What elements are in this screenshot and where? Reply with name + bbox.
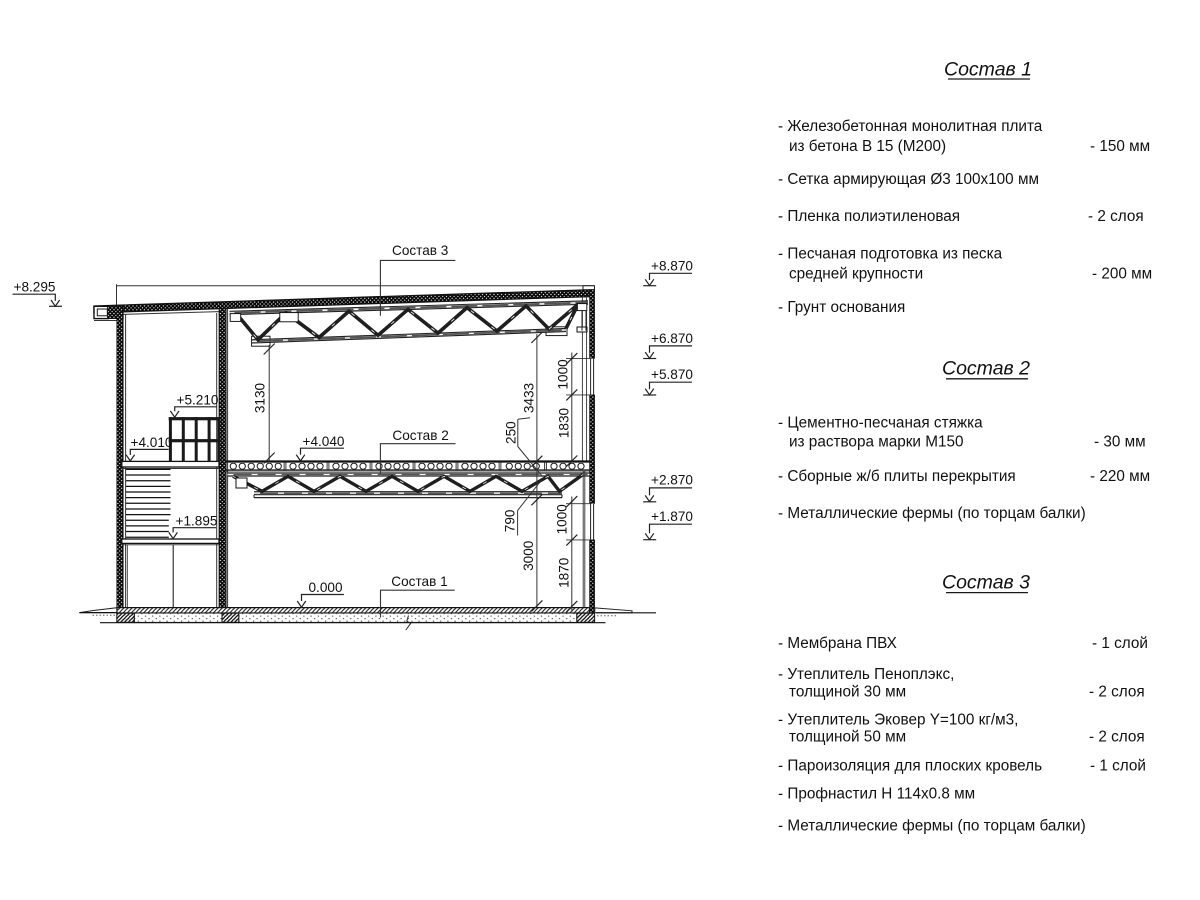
svg-text:- Мембрана ПВХ: - Мембрана ПВХ [778,635,897,652]
svg-text:1000: 1000 [556,359,571,390]
svg-text:+8.870: +8.870 [651,258,693,273]
svg-text:- Металлические фермы (по торц: - Металлические фермы (по торцам балки) [778,505,1086,522]
svg-text:Состав 1: Состав 1 [391,574,447,589]
svg-text:+1.895: +1.895 [176,514,218,529]
svg-text:- Металлические фермы (по торц: - Металлические фермы (по торцам балки) [778,818,1086,835]
svg-text:- Утеплитель Пеноплэкс,: - Утеплитель Пеноплэкс, [778,666,954,683]
svg-text:- Пароизоляция для плоских кро: - Пароизоляция для плоских кровель [778,758,1042,775]
svg-text:3433: 3433 [522,383,537,413]
svg-text:Состав 2: Состав 2 [942,358,1030,380]
svg-text:- 2 слоя: - 2 слоя [1089,729,1145,746]
svg-text:+5.870: +5.870 [651,367,693,382]
svg-text:- Железобетонная монолитная п: - Железобетонная монолитная плита [778,118,1043,135]
svg-text:толщиной 30 мм: толщиной 30 мм [789,684,906,701]
svg-text:толщиной 50 мм: толщиной 50 мм [789,729,906,746]
svg-text:Состав 2: Состав 2 [392,428,448,443]
svg-text:Состав 3: Состав 3 [392,243,448,258]
svg-text:из бетона В 15 (М200): из бетона В 15 (М200) [789,138,946,155]
svg-text:+2.870: +2.870 [651,473,693,488]
svg-text:250: 250 [503,421,518,444]
svg-text:- 30 мм: - 30 мм [1094,434,1146,451]
svg-text:- Профнастил Н 114х0.8 мм: - Профнастил Н 114х0.8 мм [778,786,975,803]
svg-text:- Сборные ж/б плиты перекрытия: - Сборные ж/б плиты перекрытия [778,468,1016,485]
svg-text:+1.870: +1.870 [651,509,693,524]
svg-text:Состав 1: Состав 1 [944,59,1032,81]
svg-text:- Грунт основания: - Грунт основания [778,299,905,316]
svg-text:из раствора марки М150: из раствора марки М150 [789,434,964,451]
svg-text:- Пленка полиэтиленовая: - Пленка полиэтиленовая [778,208,960,225]
svg-text:- Цементно-песчаная стяжка: - Цементно-песчаная стяжка [778,415,983,432]
svg-text:- 220 мм: - 220 мм [1090,468,1150,485]
svg-text:- 200 мм: - 200 мм [1092,266,1152,283]
svg-text:средней крупности: средней крупности [789,266,923,283]
svg-text:- 150 мм: - 150 мм [1090,138,1150,155]
svg-text:+4.010: +4.010 [131,435,173,450]
svg-text:+4.040: +4.040 [303,434,345,449]
svg-text:- 2 слоя: - 2 слоя [1089,684,1145,701]
svg-text:1000: 1000 [555,504,570,535]
svg-text:+6.870: +6.870 [651,331,693,346]
svg-text:- Песчаная подготовка из песка: - Песчаная подготовка из песка [778,246,1003,263]
svg-text:- 2 слоя: - 2 слоя [1088,208,1144,225]
svg-text:- Утеплитель Эковер Y=100 кг/м: - Утеплитель Эковер Y=100 кг/м3, [778,712,1018,729]
svg-text:1870: 1870 [557,557,572,588]
svg-text:- 1 слой: - 1 слой [1092,635,1148,652]
svg-text:1830: 1830 [557,407,572,438]
svg-text:- 1 слой: - 1 слой [1090,758,1146,775]
svg-text:+8.295: +8.295 [14,280,56,295]
svg-text:3130: 3130 [253,382,268,413]
svg-text:0.000: 0.000 [309,580,343,595]
svg-text:+5.210: +5.210 [177,392,219,407]
svg-text:Состав 3: Состав 3 [942,571,1030,593]
svg-text:- Сетка армирующая Ø3 100х100: - Сетка армирующая Ø3 100х100 мм [778,171,1039,188]
svg-text:790: 790 [503,509,518,532]
svg-text:3000: 3000 [521,540,536,571]
